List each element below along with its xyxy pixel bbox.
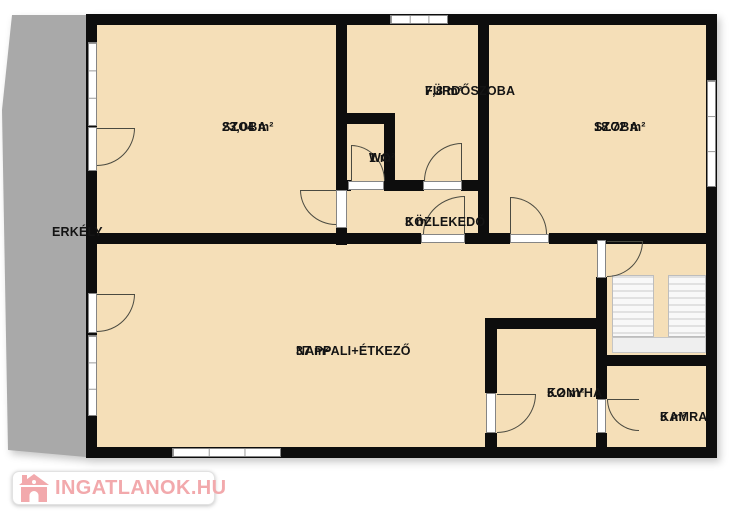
- bathroom-door: [423, 181, 462, 190]
- window: [707, 80, 716, 187]
- house-icon: [19, 474, 49, 502]
- wall: [465, 233, 510, 244]
- stair-landing: [612, 337, 706, 353]
- house-door: [30, 491, 39, 502]
- house-window: [32, 480, 36, 484]
- floorplan-page: ERKÉLYSZOBA23,04 m²FÜRDŐSZOBA7,8 m²WC1 m…: [0, 0, 730, 516]
- hall-door: [421, 234, 465, 243]
- window: [390, 15, 448, 24]
- balcony-door-szoba: [88, 127, 97, 171]
- pantry-door: [597, 399, 606, 433]
- wall: [596, 433, 607, 458]
- room-area: 5 m²: [660, 410, 687, 424]
- wall: [485, 433, 497, 458]
- room-area: 37 m²: [296, 344, 330, 358]
- room-area: 7,8 m²: [425, 84, 462, 98]
- wall: [478, 14, 489, 244]
- floorplan-drawing: ERKÉLYSZOBA23,04 m²FÜRDŐSZOBA7,8 m²WC1 m…: [0, 0, 730, 516]
- szoba-left-door: [336, 190, 347, 228]
- wall: [485, 318, 497, 393]
- entrance-door: [597, 240, 606, 278]
- staircase: [612, 275, 706, 353]
- wall: [386, 180, 424, 191]
- room-area: 18.72 m²: [594, 120, 646, 134]
- stair-flight-2: [668, 275, 706, 337]
- window: [88, 42, 97, 126]
- balcony-door-nappali: [88, 293, 97, 333]
- stair-gap: [654, 275, 668, 337]
- window: [172, 448, 281, 457]
- room-area: 1 m²: [369, 151, 396, 165]
- kitchen-door: [486, 393, 496, 433]
- room-name: ERKÉLY: [52, 225, 103, 239]
- stair-flight-1: [612, 275, 654, 337]
- wall: [336, 113, 395, 124]
- watermark-logo: INGATLANOK.HU: [12, 471, 215, 505]
- room-area: 5.2 m²: [547, 386, 584, 400]
- wall: [86, 233, 421, 244]
- wall: [336, 14, 347, 190]
- room-area: 3 m²: [405, 215, 432, 229]
- wall: [596, 355, 717, 366]
- room-area: 23,04 m²: [222, 120, 274, 134]
- szoba-right-door: [510, 234, 549, 243]
- wall: [485, 318, 607, 329]
- window: [88, 335, 97, 416]
- wc-door: [348, 181, 384, 190]
- wall: [596, 277, 607, 399]
- watermark-text: INGATLANOK.HU: [55, 478, 226, 498]
